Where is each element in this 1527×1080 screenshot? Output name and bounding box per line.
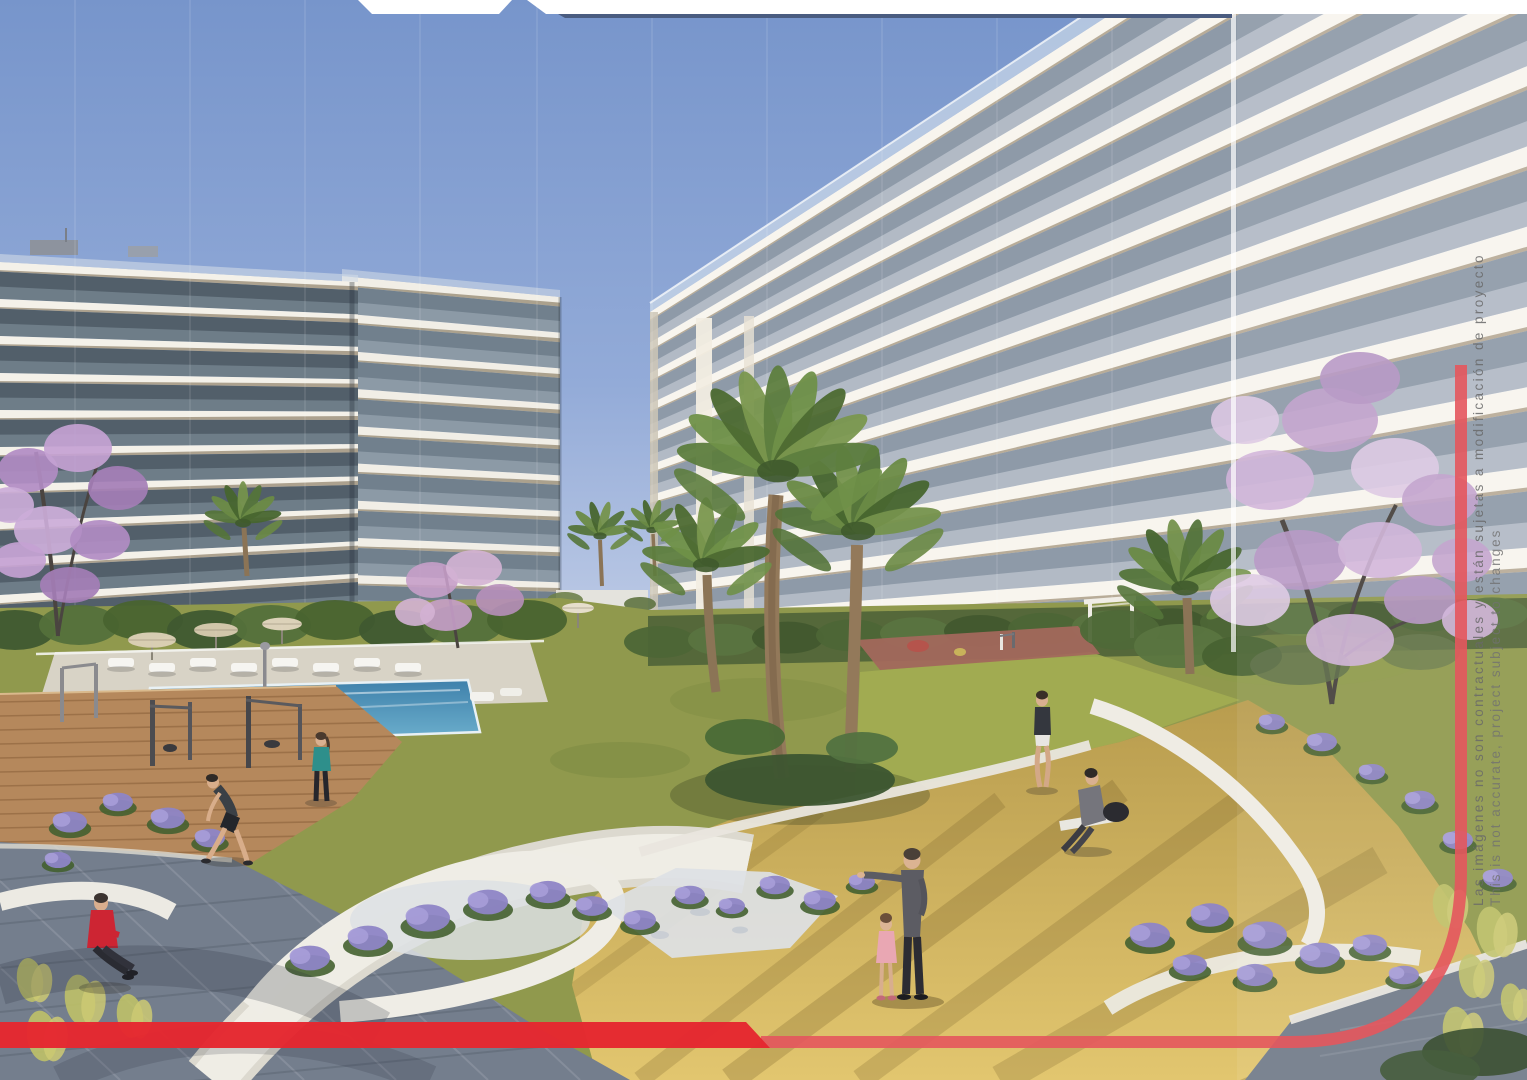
brochure-page: Las imágenes no son contractuales y está… xyxy=(0,0,1527,1080)
architectural-render xyxy=(0,0,1527,1080)
disclaimer-text-en: This is not accurate, project subject to… xyxy=(1487,529,1504,906)
disclaimer-text-es: Las imágenes no son contractuales y está… xyxy=(1470,253,1487,906)
